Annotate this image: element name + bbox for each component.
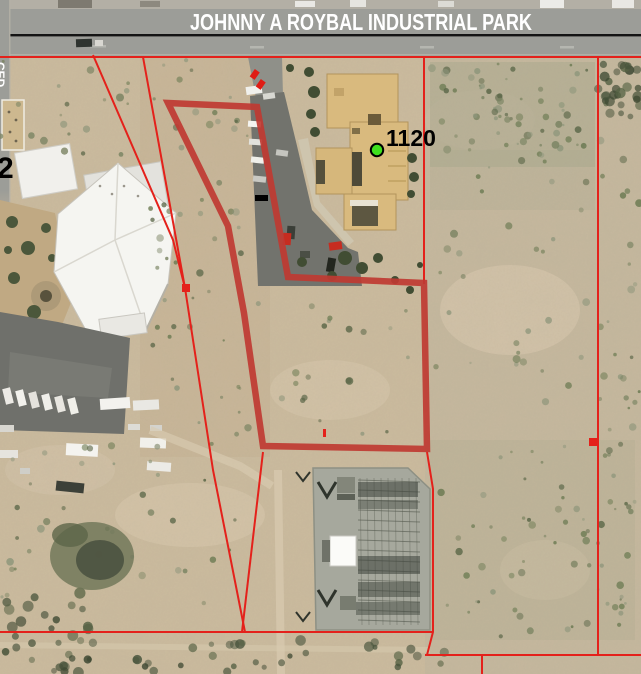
street-banner-label: JOHNNY A ROYBAL INDUSTRIAL PARK [190, 9, 532, 35]
address-marker-dot[interactable] [371, 144, 383, 156]
substation [296, 468, 430, 630]
side-street-label: CED [0, 62, 7, 88]
brush-patch [50, 522, 134, 590]
vehicle-on-road [76, 39, 92, 48]
building-roof-nw [14, 143, 77, 198]
substation-building [330, 536, 356, 566]
map-canvas[interactable]: 1120 2 JOHNNY A ROYBAL INDUSTRIAL PARK C… [0, 0, 641, 674]
outbuilding-west [2, 100, 24, 150]
aerial-map-view: 1120 2 JOHNNY A ROYBAL INDUSTRIAL PARK C… [0, 0, 641, 674]
parcel-number-label: 2 [0, 152, 14, 185]
transformer-box [337, 477, 355, 493]
address-marker-label: 1120 [386, 125, 436, 151]
